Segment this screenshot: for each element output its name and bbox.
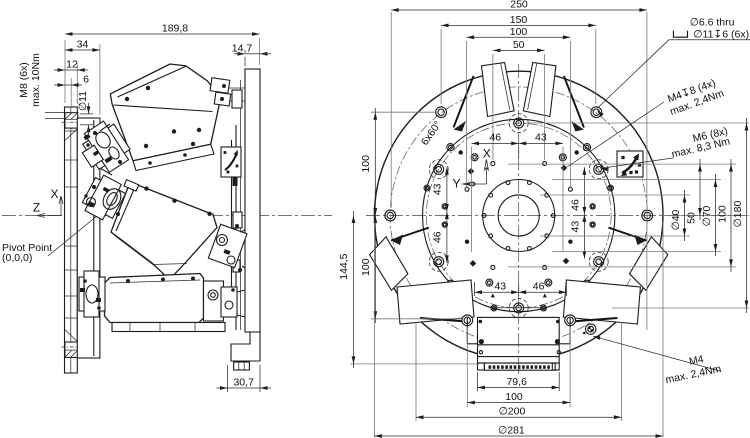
svg-text:∅281: ∅281 (498, 425, 525, 437)
svg-text:X: X (50, 187, 58, 201)
svg-text:∅200: ∅200 (499, 406, 526, 418)
svg-text:46: 46 (533, 280, 545, 292)
svg-text:46: 46 (489, 132, 501, 144)
svg-text:46: 46 (432, 231, 444, 243)
svg-text:max. 10Nm: max. 10Nm (30, 53, 42, 107)
svg-text:100: 100 (716, 205, 728, 223)
svg-text:79,6: 79,6 (506, 376, 527, 388)
svg-text:∅11↧6 (6x): ∅11↧6 (6x) (693, 29, 749, 41)
svg-text:∅40: ∅40 (670, 209, 682, 230)
svg-text:(0,0,0): (0,0,0) (2, 252, 32, 264)
svg-text:100: 100 (360, 258, 372, 276)
svg-text:100: 100 (360, 155, 372, 173)
svg-text:14,7: 14,7 (232, 42, 253, 54)
svg-text:144,5: 144,5 (338, 253, 350, 279)
svg-text:250: 250 (510, 0, 528, 11)
svg-text:43: 43 (570, 221, 582, 233)
svg-text:12: 12 (66, 59, 78, 71)
svg-text:6: 6 (83, 74, 89, 86)
svg-text:M8 (6x): M8 (6x) (18, 62, 30, 98)
svg-text:50: 50 (685, 212, 697, 224)
svg-text:100: 100 (505, 391, 523, 403)
svg-text:Z: Z (33, 201, 40, 215)
svg-text:∅180: ∅180 (732, 201, 744, 228)
svg-text:100: 100 (510, 26, 528, 38)
svg-text:43: 43 (535, 132, 547, 144)
svg-text:30,7: 30,7 (233, 377, 254, 389)
svg-text:43: 43 (494, 280, 506, 292)
svg-text:X: X (483, 147, 491, 161)
svg-text:46: 46 (570, 199, 582, 211)
svg-text:∅6.6 thru: ∅6.6 thru (690, 17, 735, 29)
svg-text:Y: Y (452, 177, 460, 191)
svg-text:50: 50 (513, 39, 525, 51)
svg-text:43: 43 (432, 183, 444, 195)
svg-text:150: 150 (510, 14, 528, 26)
svg-text:∅70: ∅70 (701, 205, 713, 226)
svg-text:34: 34 (77, 39, 89, 51)
svg-text:189,8: 189,8 (162, 23, 188, 35)
